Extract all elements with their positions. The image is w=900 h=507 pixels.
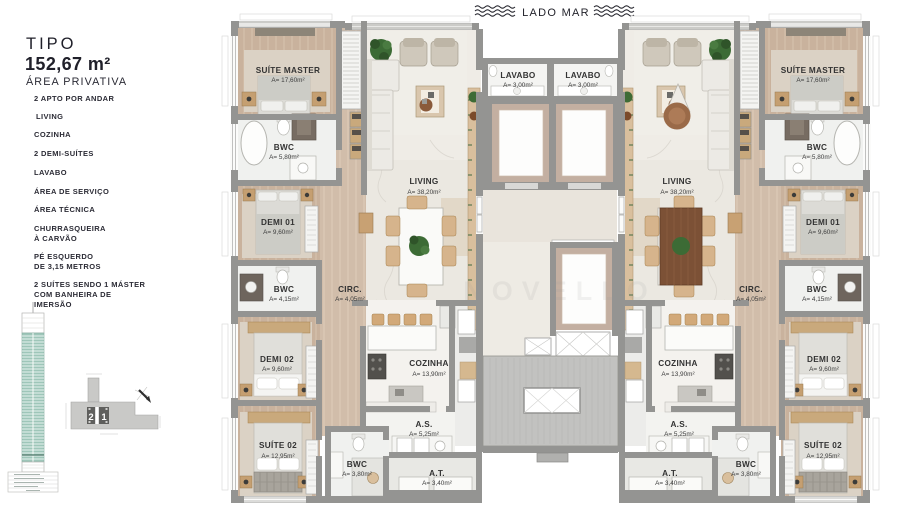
svg-text:DEMI 02: DEMI 02 <box>807 355 841 364</box>
svg-text:COZINHA: COZINHA <box>658 359 697 368</box>
svg-text:2 DEMI-SUÍTES: 2 DEMI-SUÍTES <box>34 149 94 158</box>
svg-text:LIVING: LIVING <box>409 177 438 186</box>
svg-text:COZINHA: COZINHA <box>34 130 71 139</box>
svg-text:CIRC.: CIRC. <box>739 285 763 294</box>
svg-text:COM BANHEIRA DE: COM BANHEIRA DE <box>34 290 111 299</box>
svg-text:A= 13,90m²: A= 13,90m² <box>661 371 694 378</box>
svg-text:152,67 m²: 152,67 m² <box>25 54 111 74</box>
svg-text:LADO MAR: LADO MAR <box>522 7 590 19</box>
svg-text:A= 9,60m²: A= 9,60m² <box>262 366 292 373</box>
svg-text:A= 3,80m²: A= 3,80m² <box>731 471 761 478</box>
svg-text:DEMI 01: DEMI 01 <box>261 218 295 227</box>
svg-text:A= 5,25m²: A= 5,25m² <box>664 431 694 438</box>
svg-text:LIVING: LIVING <box>36 112 63 121</box>
svg-text:ÁREA DE SERVIÇO: ÁREA DE SERVIÇO <box>34 187 109 196</box>
svg-text:COZINHA: COZINHA <box>409 359 448 368</box>
svg-text:CIRC.: CIRC. <box>338 285 362 294</box>
svg-text:LIVING: LIVING <box>662 177 691 186</box>
svg-text:A.T.: A.T. <box>429 469 445 478</box>
svg-text:A= 4,15m²: A= 4,15m² <box>802 296 832 303</box>
svg-text:PÉ ESQUERDO: PÉ ESQUERDO <box>34 252 93 261</box>
svg-text:A= 5,80m²: A= 5,80m² <box>802 154 832 161</box>
svg-text:A= 12,95m²: A= 12,95m² <box>806 453 839 460</box>
svg-text:A= 9,60m²: A= 9,60m² <box>809 366 839 373</box>
svg-text:A= 17,60m²: A= 17,60m² <box>796 77 829 84</box>
svg-text:CHURRASQUEIRA: CHURRASQUEIRA <box>34 224 106 233</box>
svg-text:LAVABO: LAVABO <box>500 71 535 80</box>
svg-text:A= 38,20m²: A= 38,20m² <box>407 189 440 196</box>
svg-text:2 SUÍTES SENDO 1 MÁSTER: 2 SUÍTES SENDO 1 MÁSTER <box>34 280 145 289</box>
svg-text:BWC: BWC <box>736 460 756 469</box>
svg-text:A= 17,60m²: A= 17,60m² <box>271 77 304 84</box>
svg-text:A= 3,40m²: A= 3,40m² <box>422 480 452 487</box>
svg-text:À CARVÃO: À CARVÃO <box>34 234 77 243</box>
svg-text:A= 12,95m²: A= 12,95m² <box>261 453 294 460</box>
svg-text:A.S.: A.S. <box>415 420 432 429</box>
svg-text:SUÍTE MASTER: SUÍTE MASTER <box>256 65 321 75</box>
svg-text:BWC: BWC <box>807 285 827 294</box>
svg-text:A= 4,05m²: A= 4,05m² <box>736 296 766 303</box>
svg-text:NOVELLO: NOVELLO <box>463 276 657 306</box>
svg-text:SUÍTE 02: SUÍTE 02 <box>259 440 297 450</box>
svg-text:A= 4,15m²: A= 4,15m² <box>269 296 299 303</box>
svg-text:DEMI 02: DEMI 02 <box>260 355 294 364</box>
svg-text:A= 3,80m²: A= 3,80m² <box>342 471 372 478</box>
svg-text:BWC: BWC <box>274 143 294 152</box>
svg-text:A= 3,00m²: A= 3,00m² <box>503 82 533 89</box>
svg-text:A= 9,60m²: A= 9,60m² <box>263 229 293 236</box>
svg-text:A= 9,60m²: A= 9,60m² <box>808 229 838 236</box>
svg-text:BWC: BWC <box>347 460 367 469</box>
svg-text:ÁREA TÉCNICA: ÁREA TÉCNICA <box>34 205 95 214</box>
svg-text:IMERSÃO: IMERSÃO <box>34 300 72 309</box>
svg-text:SUÍTE MASTER: SUÍTE MASTER <box>781 65 846 75</box>
svg-text:A.T.: A.T. <box>662 469 678 478</box>
svg-text:BWC: BWC <box>274 285 294 294</box>
svg-text:A= 13,90m²: A= 13,90m² <box>412 371 445 378</box>
svg-text:SUÍTE 02: SUÍTE 02 <box>804 440 842 450</box>
svg-text:BWC: BWC <box>807 143 827 152</box>
svg-text:LAVABO: LAVABO <box>34 168 67 177</box>
svg-text:LAVABO: LAVABO <box>565 71 600 80</box>
svg-text:DEMI 01: DEMI 01 <box>806 218 840 227</box>
svg-text:A= 3,40m²: A= 3,40m² <box>655 480 685 487</box>
svg-text:DE 3,15 METROS: DE 3,15 METROS <box>34 262 101 271</box>
svg-text:A= 3,00m²: A= 3,00m² <box>568 82 598 89</box>
svg-text:A= 38,20m²: A= 38,20m² <box>660 189 693 196</box>
svg-text:2 APTO POR ANDAR: 2 APTO POR ANDAR <box>34 94 114 103</box>
svg-text:A= 4,05m²: A= 4,05m² <box>335 296 365 303</box>
svg-text:TIPO: TIPO <box>26 35 77 53</box>
svg-text:A= 5,80m²: A= 5,80m² <box>269 154 299 161</box>
svg-text:A.S.: A.S. <box>670 420 687 429</box>
svg-text:A= 5,25m²: A= 5,25m² <box>409 431 439 438</box>
svg-text:ÁREA PRIVATIVA: ÁREA PRIVATIVA <box>26 75 127 88</box>
